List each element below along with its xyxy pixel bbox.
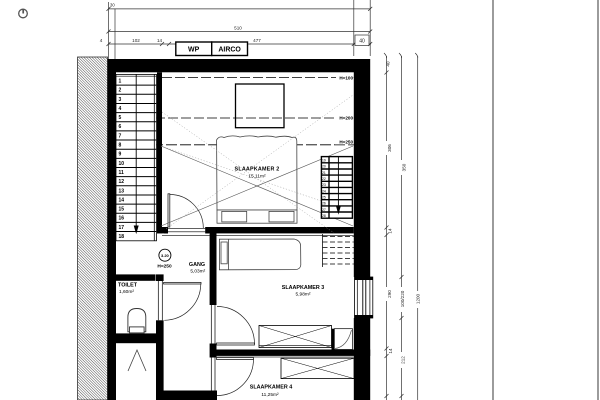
svg-text:350: 350	[402, 163, 407, 171]
svg-text:25: 25	[322, 196, 326, 200]
svg-text:AIRCO: AIRCO	[218, 47, 241, 54]
svg-text:30: 30	[110, 3, 115, 8]
svg-text:27: 27	[322, 208, 326, 212]
svg-text:5: 5	[119, 115, 122, 121]
svg-text:15: 15	[119, 207, 125, 213]
svg-text:13: 13	[119, 188, 125, 194]
svg-text:22: 22	[322, 177, 326, 181]
svg-text:3: 3	[119, 97, 122, 103]
svg-text:306: 306	[387, 144, 392, 152]
svg-text:6: 6	[119, 124, 122, 130]
svg-text:102: 102	[132, 38, 140, 43]
svg-text:24: 24	[322, 189, 326, 193]
svg-text:20: 20	[322, 165, 326, 169]
svg-text:11: 11	[119, 170, 125, 176]
svg-text:7: 7	[119, 133, 122, 139]
svg-text:14: 14	[388, 228, 393, 234]
svg-text:28: 28	[322, 214, 326, 218]
svg-text:14: 14	[119, 197, 125, 203]
svg-text:100/220: 100/220	[400, 290, 405, 307]
svg-text:477: 477	[253, 38, 261, 43]
svg-text:40: 40	[386, 61, 391, 67]
svg-text:WP: WP	[188, 47, 200, 54]
svg-text:GANG: GANG	[189, 262, 205, 268]
svg-text:15,11m²: 15,11m²	[248, 174, 266, 180]
svg-text:212: 212	[401, 356, 406, 364]
svg-text:1: 1	[119, 78, 122, 84]
svg-text:18: 18	[119, 234, 125, 240]
svg-text:SLAAPKAMER 2: SLAAPKAMER 2	[235, 167, 280, 173]
svg-text:2: 2	[119, 88, 122, 94]
svg-text:510: 510	[234, 26, 242, 31]
svg-text:1200: 1200	[416, 293, 421, 304]
svg-text:H=250: H=250	[339, 139, 353, 144]
svg-text:SLAAPKAMER 3: SLAAPKAMER 3	[282, 285, 325, 291]
svg-text:10: 10	[119, 161, 125, 167]
svg-text:5,03m²: 5,03m²	[190, 269, 205, 275]
svg-text:23: 23	[322, 183, 326, 187]
svg-text:40: 40	[359, 39, 365, 45]
svg-text:1,60m²: 1,60m²	[119, 289, 134, 295]
svg-text:SLAAPKAMER 4: SLAAPKAMER 4	[250, 385, 293, 391]
svg-text:14: 14	[388, 348, 393, 354]
svg-text:H=250: H=250	[157, 264, 172, 270]
svg-text:H=100: H=100	[339, 75, 353, 80]
svg-text:5,98m²: 5,98m²	[296, 292, 311, 298]
svg-text:4: 4	[119, 106, 122, 112]
svg-text:TOILET: TOILET	[118, 283, 138, 289]
svg-text:12: 12	[119, 179, 125, 185]
svg-text:3.20: 3.20	[161, 253, 170, 258]
svg-text:8: 8	[119, 143, 122, 149]
svg-text:290: 290	[387, 290, 392, 298]
svg-text:H=200: H=200	[339, 115, 353, 120]
svg-text:14: 14	[157, 38, 163, 43]
svg-text:26: 26	[322, 202, 326, 206]
svg-text:17: 17	[119, 225, 125, 231]
svg-text:16: 16	[119, 216, 125, 222]
svg-text:19: 19	[322, 159, 326, 163]
svg-text:4: 4	[100, 38, 103, 43]
svg-text:21: 21	[322, 171, 326, 175]
svg-text:11,25m²: 11,25m²	[261, 392, 279, 398]
svg-text:9: 9	[119, 152, 122, 158]
